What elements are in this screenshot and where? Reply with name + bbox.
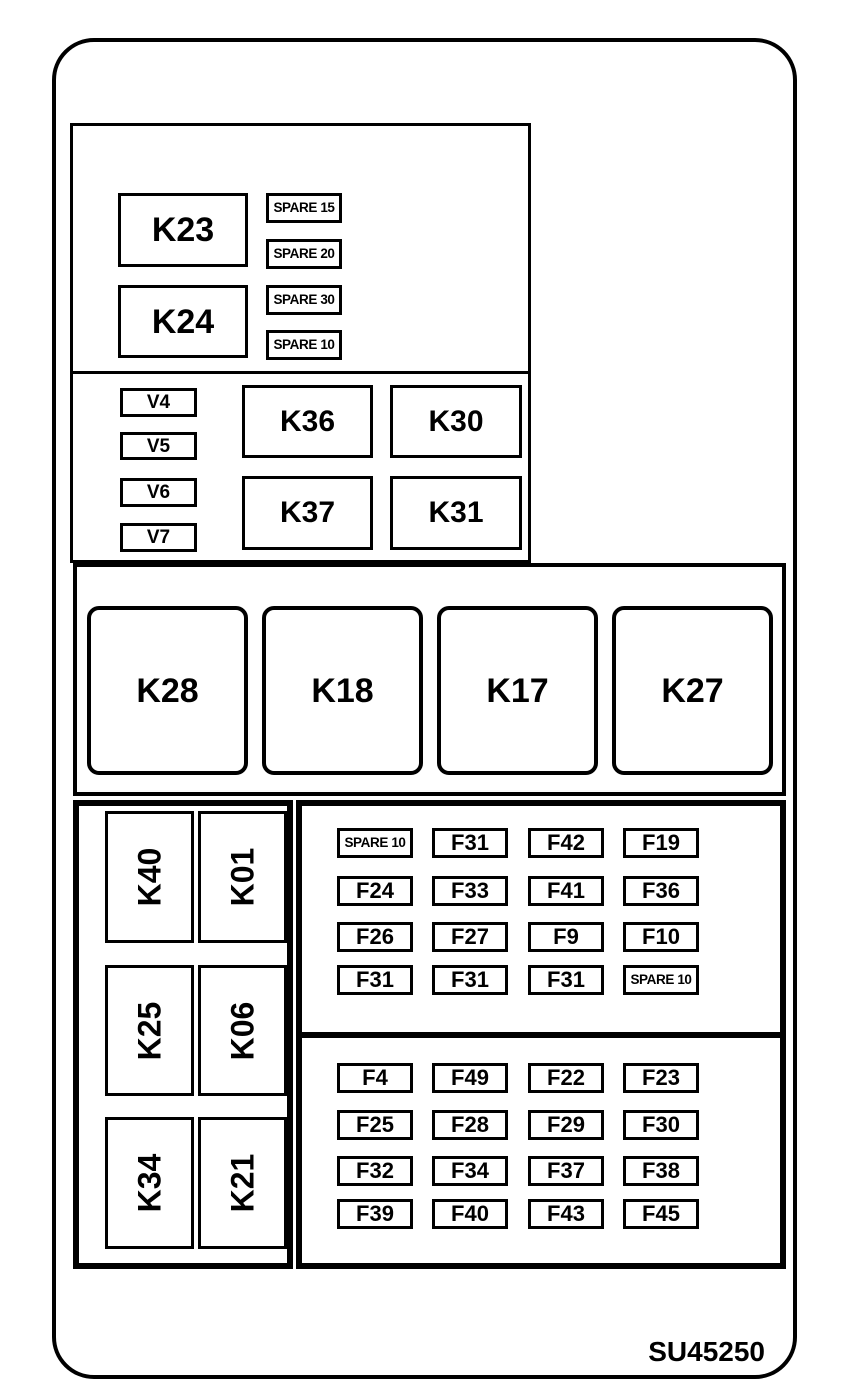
fuse-upper-r2c3-label: F10: [642, 926, 680, 948]
fuse-lower-r0c0-label: F4: [362, 1067, 388, 1089]
fuse-lower-r3c3-label: F45: [642, 1203, 680, 1225]
fuse-lower-r0c3-label: F23: [642, 1067, 680, 1089]
v-module-v7-label: V7: [147, 528, 170, 547]
fuse-lower-r1c1-label: F28: [451, 1114, 489, 1136]
fuse-lower-r3c0-label: F39: [356, 1203, 394, 1225]
v-module-v4-label: V4: [147, 393, 170, 412]
fuse-lower-r1c3-box: F30: [623, 1110, 699, 1140]
fuse-upper-r1c2-box: F41: [528, 876, 604, 906]
fuse-upper-r0c3-box: F19: [623, 828, 699, 858]
fuse-upper-r1c3-box: F36: [623, 876, 699, 906]
fuse-lower-r1c2-label: F29: [547, 1114, 585, 1136]
fuse-lower-r3c2-box: F43: [528, 1199, 604, 1229]
fuse-lower-r2c2-box: F37: [528, 1156, 604, 1186]
fuse-lower-r2c2-label: F37: [547, 1160, 585, 1182]
fuse-lower-r1c1-box: F28: [432, 1110, 508, 1140]
fuse-upper-r0c1-label: F31: [451, 832, 489, 854]
fuse-upper-r3c1-label: F31: [451, 969, 489, 991]
fuse-upper-r0c0-box: SPARE 10: [337, 828, 413, 858]
fuse-upper-r3c3-box: SPARE 10: [623, 965, 699, 995]
fuse-lower-r2c3-box: F38: [623, 1156, 699, 1186]
fuse-upper-r0c2-label: F42: [547, 832, 585, 854]
fuse-lower-r2c1-label: F34: [451, 1160, 489, 1182]
fuse-upper-r3c3-label: SPARE 10: [630, 973, 691, 987]
fuse-lower-r3c1-box: F40: [432, 1199, 508, 1229]
fuse-upper-r0c3-label: F19: [642, 832, 680, 854]
fuse-lower-r0c2-label: F22: [547, 1067, 585, 1089]
fuse-lower-r0c0-box: F4: [337, 1063, 413, 1093]
relay-k27-label: K27: [661, 674, 723, 708]
fuse-upper-r1c1-label: F33: [451, 880, 489, 902]
fuse-upper-r0c0-label: SPARE 10: [344, 836, 405, 850]
fuse-lower-r0c3-box: F23: [623, 1063, 699, 1093]
spare-fuse-15-label: SPARE 15: [273, 201, 334, 215]
relay-k34-box: K34: [105, 1117, 194, 1249]
fusebox-diagram: K23 K24 SPARE 15 SPARE 20 SPARE 30 SPARE…: [0, 0, 858, 1383]
relay-k24-box: K24: [118, 285, 248, 358]
fuse-lower-r2c0-label: F32: [356, 1160, 394, 1182]
relay-k21-label: K21: [226, 1154, 258, 1213]
relay-k25-box: K25: [105, 965, 194, 1096]
relay-k37-box: K37: [242, 476, 373, 550]
fuse-lower-r3c1-label: F40: [451, 1203, 489, 1225]
relay-k17-label: K17: [486, 674, 548, 708]
fuse-lower-r0c2-box: F22: [528, 1063, 604, 1093]
v-module-v4-box: V4: [120, 388, 197, 417]
relay-k24-label: K24: [152, 305, 214, 339]
relay-k06-label: K06: [226, 1001, 258, 1060]
relay-k40-label: K40: [133, 848, 165, 907]
relay-k25-label: K25: [133, 1001, 165, 1060]
relay-k36-label: K36: [280, 407, 335, 437]
fuse-upper-r1c3-label: F36: [642, 880, 680, 902]
fuse-lower-r3c3-box: F45: [623, 1199, 699, 1229]
diagram-code: SU45250: [605, 1338, 765, 1370]
v-module-v5-box: V5: [120, 432, 197, 460]
spare-fuse-30-label: SPARE 30: [273, 293, 334, 307]
fuse-upper-r1c2-label: F41: [547, 880, 585, 902]
fuse-upper-r2c3-box: F10: [623, 922, 699, 952]
fuse-upper-r3c2-label: F31: [547, 969, 585, 991]
spare-fuse-15-box: SPARE 15: [266, 193, 342, 223]
fuse-upper-r2c2-label: F9: [553, 926, 579, 948]
fuse-lower-r3c2-label: F43: [547, 1203, 585, 1225]
fuse-lower-r1c0-label: F25: [356, 1114, 394, 1136]
v-module-v7-box: V7: [120, 523, 197, 552]
relay-k28-box: K28: [87, 606, 248, 775]
fuse-upper-r0c1-box: F31: [432, 828, 508, 858]
fuse-lower-r2c0-box: F32: [337, 1156, 413, 1186]
fuse-lower-r2c3-label: F38: [642, 1160, 680, 1182]
relay-k34-label: K34: [133, 1154, 165, 1213]
fuse-upper-r2c0-box: F26: [337, 922, 413, 952]
spare-fuse-10-label: SPARE 10: [273, 338, 334, 352]
fuse-upper-r1c0-label: F24: [356, 880, 394, 902]
fuse-upper-r3c2-box: F31: [528, 965, 604, 995]
fuse-lower-r3c0-box: F39: [337, 1199, 413, 1229]
fuse-lower-r1c3-label: F30: [642, 1114, 680, 1136]
relay-k40-box: K40: [105, 811, 194, 943]
fuse-upper-r3c1-box: F31: [432, 965, 508, 995]
spare-fuse-30-box: SPARE 30: [266, 285, 342, 315]
relay-k31-box: K31: [390, 476, 522, 550]
fuse-upper-r2c2-box: F9: [528, 922, 604, 952]
fuse-lower-r0c1-label: F49: [451, 1067, 489, 1089]
fuse-upper-r3c0-label: F31: [356, 969, 394, 991]
v-module-v6-label: V6: [147, 483, 170, 502]
fuse-upper-r2c1-box: F27: [432, 922, 508, 952]
fuse-upper-r1c0-box: F24: [337, 876, 413, 906]
relay-k37-label: K37: [280, 498, 335, 528]
spare-fuse-20-label: SPARE 20: [273, 247, 334, 261]
fuse-section-divider: [296, 1032, 786, 1038]
relay-k01-box: K01: [198, 811, 287, 943]
relay-k23-label: K23: [152, 213, 214, 247]
relay-k18-box: K18: [262, 606, 423, 775]
fuse-upper-r0c2-box: F42: [528, 828, 604, 858]
top-section-divider: [70, 371, 531, 374]
fuse-upper-r2c1-label: F27: [451, 926, 489, 948]
relay-k18-label: K18: [311, 674, 373, 708]
fuse-upper-r1c1-box: F33: [432, 876, 508, 906]
relay-k06-box: K06: [198, 965, 287, 1096]
spare-fuse-10-box: SPARE 10: [266, 330, 342, 360]
relay-k31-label: K31: [428, 498, 483, 528]
relay-k28-label: K28: [136, 674, 198, 708]
relay-k36-box: K36: [242, 385, 373, 458]
relay-k17-box: K17: [437, 606, 598, 775]
relay-k30-label: K30: [428, 407, 483, 437]
relay-k27-box: K27: [612, 606, 773, 775]
fuse-lower-r1c0-box: F25: [337, 1110, 413, 1140]
fuse-upper-r3c0-box: F31: [337, 965, 413, 995]
fuse-upper-r2c0-label: F26: [356, 926, 394, 948]
v-module-v5-label: V5: [147, 437, 170, 456]
relay-k30-box: K30: [390, 385, 522, 458]
relay-k21-box: K21: [198, 1117, 287, 1249]
fuse-lower-r0c1-box: F49: [432, 1063, 508, 1093]
relay-k01-label: K01: [226, 848, 258, 907]
spare-fuse-20-box: SPARE 20: [266, 239, 342, 269]
v-module-v6-box: V6: [120, 478, 197, 507]
fuse-lower-r1c2-box: F29: [528, 1110, 604, 1140]
fuse-lower-r2c1-box: F34: [432, 1156, 508, 1186]
relay-k23-box: K23: [118, 193, 248, 267]
